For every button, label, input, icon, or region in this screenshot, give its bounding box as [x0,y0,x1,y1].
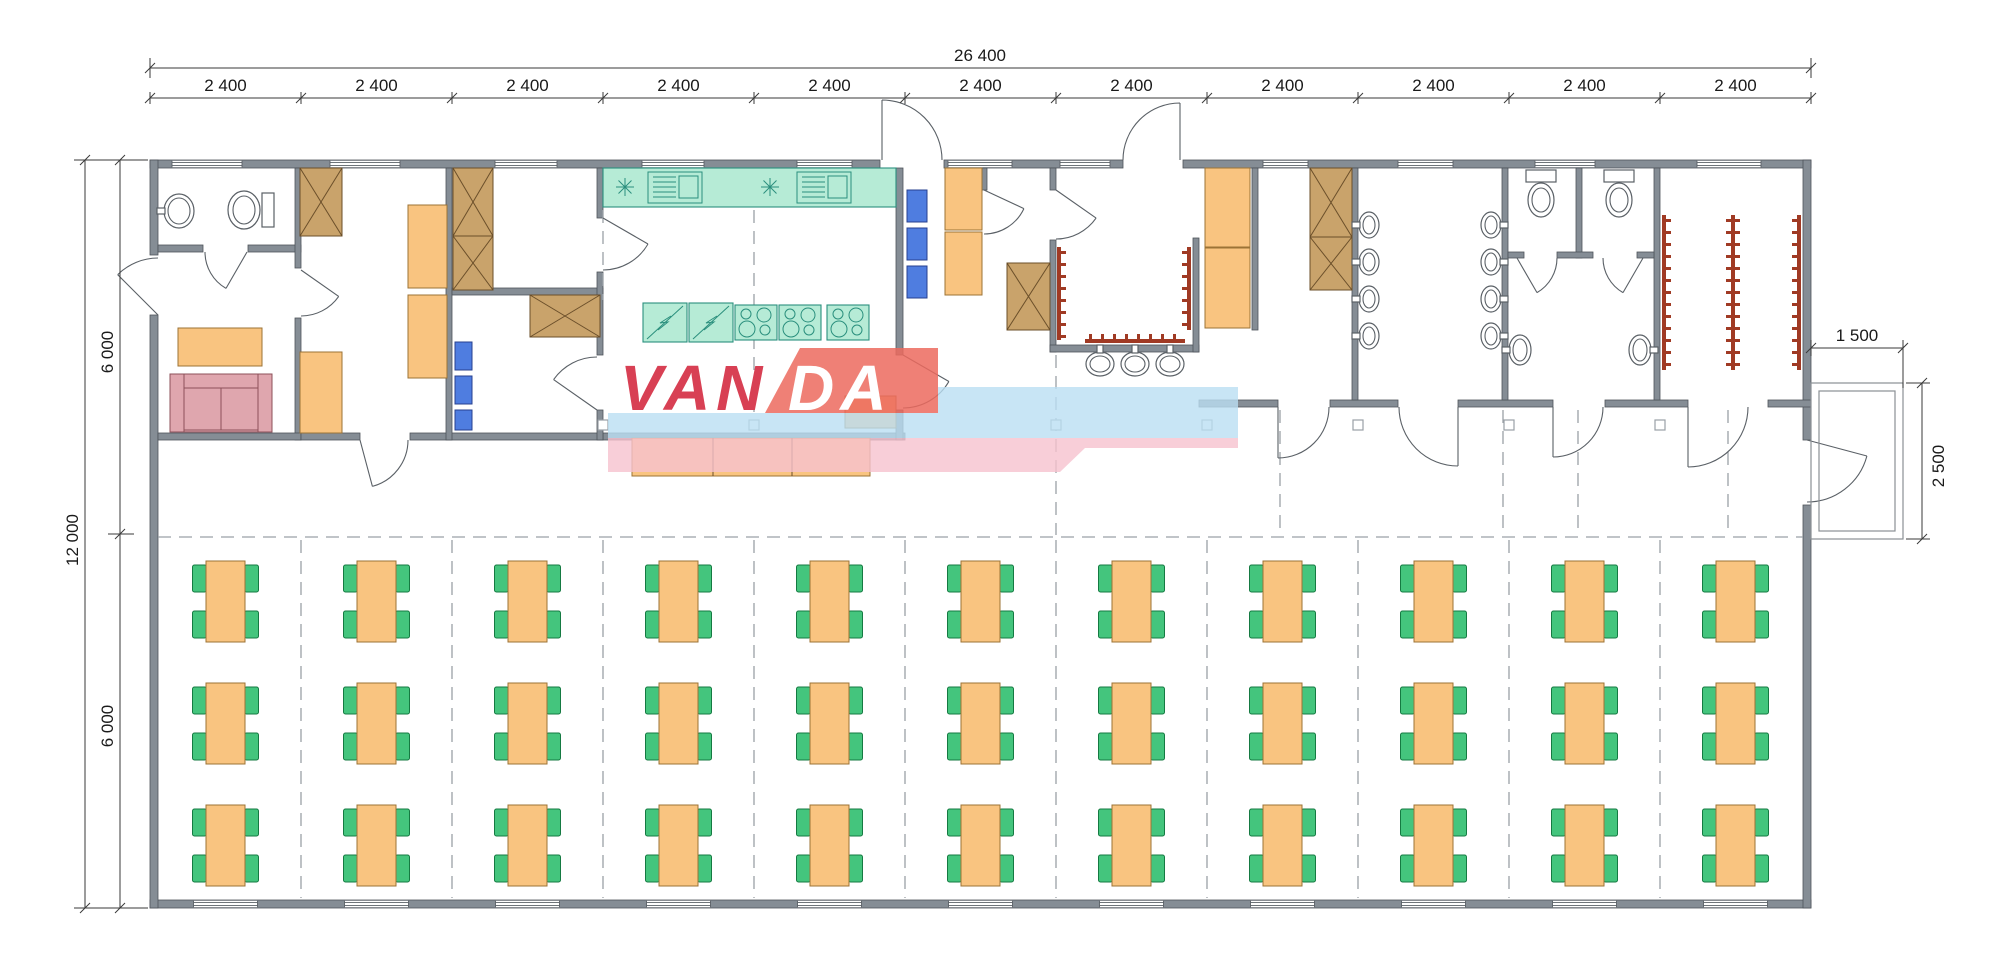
hook-peg [1792,291,1797,294]
hook-peg [1061,263,1066,266]
dining-table [206,805,245,886]
chair [646,611,660,638]
dim-segment-label: 2 400 [355,76,398,95]
chair [1151,809,1165,836]
chair [1250,565,1264,592]
fridge-icon [689,303,733,342]
dining-table-group [495,805,561,886]
chair [396,809,410,836]
window-glass [1100,901,1164,907]
chair [193,565,207,592]
toilet-tank [1526,170,1556,182]
sofa [170,374,272,432]
dining-table [1414,683,1453,764]
chair [698,565,712,592]
chair [646,687,660,714]
hook-peg [1061,311,1066,314]
door-swing-icon [1688,407,1748,467]
sink-icon [157,194,194,228]
dining-table [1112,805,1151,886]
dim-porch-height: 2 500 [1929,445,1948,488]
dining-table-group [797,683,863,764]
door-swing-icon [882,100,942,160]
hook-peg [1182,323,1187,326]
shelf [907,190,927,222]
wall-segment [1050,168,1056,190]
hook-peg [1735,267,1740,270]
wardrobe-icon [1007,263,1050,330]
window-glass [1553,901,1617,907]
window-glass [496,901,560,907]
chair [1000,687,1014,714]
chair [1151,565,1165,592]
chair [547,855,561,882]
dining-table-group [948,561,1014,642]
wall-segment [1252,168,1258,330]
window-icon [495,161,557,167]
wall-segment [150,315,158,908]
chair [1000,611,1014,638]
chair [1552,687,1566,714]
dining-table [206,561,245,642]
dining-table-group [344,561,410,642]
hook-peg [1666,327,1671,330]
chair [797,611,811,638]
chair [547,687,561,714]
dining-table-group [646,805,712,886]
dining-table [1112,561,1151,642]
hook-peg [1113,334,1116,339]
dining-table-group [495,561,561,642]
sofa-cushion [184,388,221,430]
dining-table-group [948,805,1014,886]
dining-table-group [1250,805,1316,886]
floor-plan-page: 26 400 12 000 6 000 6 000 1 500 2 500 2 … [0,0,2000,975]
chair [948,809,962,836]
chair [1604,687,1618,714]
toilet-tank [262,193,274,227]
hook-peg [1137,334,1140,339]
chair [547,733,561,760]
chair [193,855,207,882]
window-icon [1704,901,1768,907]
window-glass [1402,901,1466,907]
wall-segment [1050,345,1199,352]
dining-table [357,683,396,764]
stool [455,376,472,404]
watermark-text-da: DA [788,352,892,424]
hook-rail [1797,215,1801,370]
dining-table-group [646,561,712,642]
tap [1650,347,1658,353]
wall-segment [1508,252,1524,258]
sofa-arm [258,374,272,432]
chair [1401,855,1415,882]
hook-peg [1735,231,1740,234]
watermark-text: VAN DA [620,352,892,424]
dining-table [659,805,698,886]
window-icon [172,161,242,167]
dim-segment-label: 2 400 [657,76,700,95]
hook-peg [1735,327,1740,330]
coat-hooks-icon [1057,247,1066,340]
chair [1604,855,1618,882]
tap [1500,333,1508,339]
hook-peg [1182,299,1187,302]
cabinet [945,232,982,295]
hook-peg [1101,334,1104,339]
tap [1500,259,1508,265]
hook-peg [1182,251,1187,254]
hook-peg [1182,263,1187,266]
dining-table [1565,561,1604,642]
window-glass [647,901,711,907]
coat-hooks-icon [1662,215,1671,370]
window-glass [345,901,409,907]
dining-table-group [193,805,259,886]
wardrobe-icon [300,168,342,236]
shelf [907,228,927,260]
wall-segment [1803,505,1811,908]
chair [495,733,509,760]
tap [1352,333,1360,339]
wall-segment [1352,168,1358,400]
hook-peg [1061,287,1066,290]
dim-total-width: 26 400 [954,46,1006,65]
chair [698,687,712,714]
chair [948,611,962,638]
door-swing-icon [1123,103,1180,160]
hook-peg [1735,279,1740,282]
chair [1000,733,1014,760]
dimension-lines: 2 4002 4002 4002 4002 4002 4002 4002 400… [74,58,1930,913]
chair [344,687,358,714]
hook-peg [1173,334,1176,339]
window-icon [1402,901,1466,907]
chair [948,855,962,882]
hook-peg [1792,243,1797,246]
hook-peg [1182,287,1187,290]
hook-peg [1666,303,1671,306]
hook-rail [1662,215,1666,370]
chair [245,733,259,760]
chair [849,809,863,836]
dim-segment-label: 2 400 [1563,76,1606,95]
chair [1302,565,1316,592]
chair [1552,809,1566,836]
stove-icon [779,305,821,340]
chair [245,809,259,836]
tap [1097,345,1103,353]
tap [1352,222,1360,228]
hook-peg [1666,243,1671,246]
chair [1755,733,1769,760]
window-icon [1251,901,1315,907]
hook-peg [1726,327,1731,330]
window-glass [194,901,258,907]
hook-peg [1726,243,1731,246]
chair [1755,855,1769,882]
chair [547,611,561,638]
hook-peg [1666,315,1671,318]
hook-peg [1726,291,1731,294]
dining-table [1716,561,1755,642]
chair [396,687,410,714]
tap [157,208,165,214]
wall-segment [248,245,301,252]
watermark-band-pink [608,438,1238,472]
sofa-arm [170,374,184,432]
wall-segment [1458,400,1553,407]
hook-peg [1726,315,1731,318]
chair [1099,809,1113,836]
door-swing-icon [205,252,247,288]
chair [1000,565,1014,592]
hook-peg [1061,251,1066,254]
chair [344,733,358,760]
hook-peg [1726,363,1731,366]
chair [396,855,410,882]
chair [1099,565,1113,592]
window-glass [172,161,242,167]
wall-segment [1654,168,1660,400]
door-swing-icon [554,357,597,410]
chair [495,809,509,836]
hook-peg [1735,255,1740,258]
hook-peg [1792,219,1797,222]
floor-plan-canvas: 26 400 12 000 6 000 6 000 1 500 2 500 2 … [0,0,2000,975]
wall-segment [158,433,301,440]
dining-table [961,805,1000,886]
chair [547,809,561,836]
dining-table [810,805,849,886]
dining-table-group [344,683,410,764]
window-icon [647,901,711,907]
dining-table-group [495,683,561,764]
chair [1000,855,1014,882]
toilet-icon [228,191,274,229]
window-glass [1251,901,1315,907]
dining-table-group [1703,805,1769,886]
wardrobe-icon [1310,237,1352,290]
dim-segment-label: 2 400 [1714,76,1757,95]
chair [646,565,660,592]
window-glass [798,901,862,907]
chair [948,733,962,760]
dining-table [1716,683,1755,764]
dim-left-bottom-half: 6 000 [98,705,117,748]
chair [1552,855,1566,882]
dining-table-group [1552,561,1618,642]
chair [1250,733,1264,760]
coat-hooks-icon [1792,215,1801,370]
tap [1500,296,1508,302]
tap [1167,345,1173,353]
hook-peg [1735,363,1740,366]
grid-marker [1353,420,1363,430]
chair [849,687,863,714]
dining-table-group [1401,561,1467,642]
stool [455,342,472,370]
dining-table [1263,805,1302,886]
chair [1151,855,1165,882]
wardrobe-icon [1310,168,1352,237]
chair [1302,809,1316,836]
chair [245,611,259,638]
hook-peg [1726,339,1731,342]
chair [245,855,259,882]
hook-peg [1726,255,1731,258]
toilet-tank [1604,170,1634,182]
window-icon [949,901,1013,907]
wardrobe-icon [453,236,493,290]
chair [1000,809,1014,836]
dim-segment-label: 2 400 [204,76,247,95]
hook-rail [1057,247,1061,340]
hook-peg [1735,243,1740,246]
hook-peg [1726,231,1731,234]
chair [495,611,509,638]
hook-peg [1061,323,1066,326]
chair [1302,687,1316,714]
hook-peg [1792,363,1797,366]
window-icon [1263,161,1308,167]
dining-table [1263,561,1302,642]
chair [1401,809,1415,836]
dim-porch-width: 1 500 [1836,326,1879,345]
chair [797,855,811,882]
dining-table [357,805,396,886]
light-icon [761,178,779,196]
hook-peg [1182,311,1187,314]
chair [1755,687,1769,714]
door-swing-icon [1807,440,1867,502]
door-swing-icon [1056,190,1096,239]
sofa-back [170,374,272,388]
kitchen-counter [603,168,896,207]
chair [797,565,811,592]
wall-segment [1803,160,1811,440]
dining-table-group [1250,683,1316,764]
dining-table-group [1552,805,1618,886]
chair [495,855,509,882]
dining-table-group [1401,805,1467,886]
wardrobe-icon [530,295,600,337]
dining-table-group [1250,561,1316,642]
chair [849,733,863,760]
chair [344,611,358,638]
dining-table [508,683,547,764]
chair [344,565,358,592]
wall-segment [410,433,603,440]
window-icon [1553,901,1617,907]
hook-peg [1735,219,1740,222]
hook-peg [1666,351,1671,354]
wall-segment [301,433,360,440]
grid-marker [1655,420,1665,430]
hook-peg [1666,363,1671,366]
door-swing-icon [118,258,158,315]
chair [1453,809,1467,836]
hook-peg [1666,339,1671,342]
chair [1552,733,1566,760]
wall-segment [1637,252,1654,258]
hook-peg [1726,219,1731,222]
chair [1099,687,1113,714]
chair [849,611,863,638]
hook-rail [1085,339,1185,343]
dim-segment-label: 2 400 [959,76,1002,95]
stool [455,410,472,430]
chair [849,565,863,592]
hook-peg [1792,339,1797,342]
hook-peg [1061,275,1066,278]
chair [698,611,712,638]
hook-peg [1735,351,1740,354]
chair [1453,855,1467,882]
chair [1302,733,1316,760]
hook-peg [1182,275,1187,278]
dining-table [1716,805,1755,886]
hook-peg [1792,315,1797,318]
hook-rail [1731,215,1735,370]
hook-peg [1735,315,1740,318]
hook-peg [1726,279,1731,282]
window-glass [495,161,557,167]
dining-table [810,561,849,642]
hook-peg [1149,334,1152,339]
window-icon [1535,161,1595,167]
chair [1453,687,1467,714]
chair [1604,565,1618,592]
window-icon [1060,161,1110,167]
dining-table-group [1099,561,1165,642]
dim-segment-label: 2 400 [808,76,851,95]
hook-peg [1792,279,1797,282]
hook-peg [1666,291,1671,294]
dining-table-group [797,805,863,886]
chair [1604,733,1618,760]
dining-table-group [797,561,863,642]
chair [245,565,259,592]
hook-peg [1666,267,1671,270]
chair [1703,855,1717,882]
chair [646,733,660,760]
window-icon [1697,161,1761,167]
chair [646,855,660,882]
hook-peg [1735,339,1740,342]
chair [1703,733,1717,760]
dim-segment-label: 2 400 [1412,76,1455,95]
hook-peg [1666,279,1671,282]
table [178,328,262,366]
tap [1352,259,1360,265]
coat-hooks-icon [1726,215,1740,370]
chair [495,565,509,592]
cabinet [1205,248,1250,328]
fridge-icon [643,303,687,342]
wall-segment [1576,168,1582,258]
chair [1552,611,1566,638]
wall-segment [1768,400,1811,407]
chair [396,733,410,760]
chair [1401,733,1415,760]
dining-table-group [1552,683,1618,764]
dining-table-group [1703,561,1769,642]
chair [797,733,811,760]
wall-segment [1193,238,1199,352]
window-glass [330,161,400,167]
